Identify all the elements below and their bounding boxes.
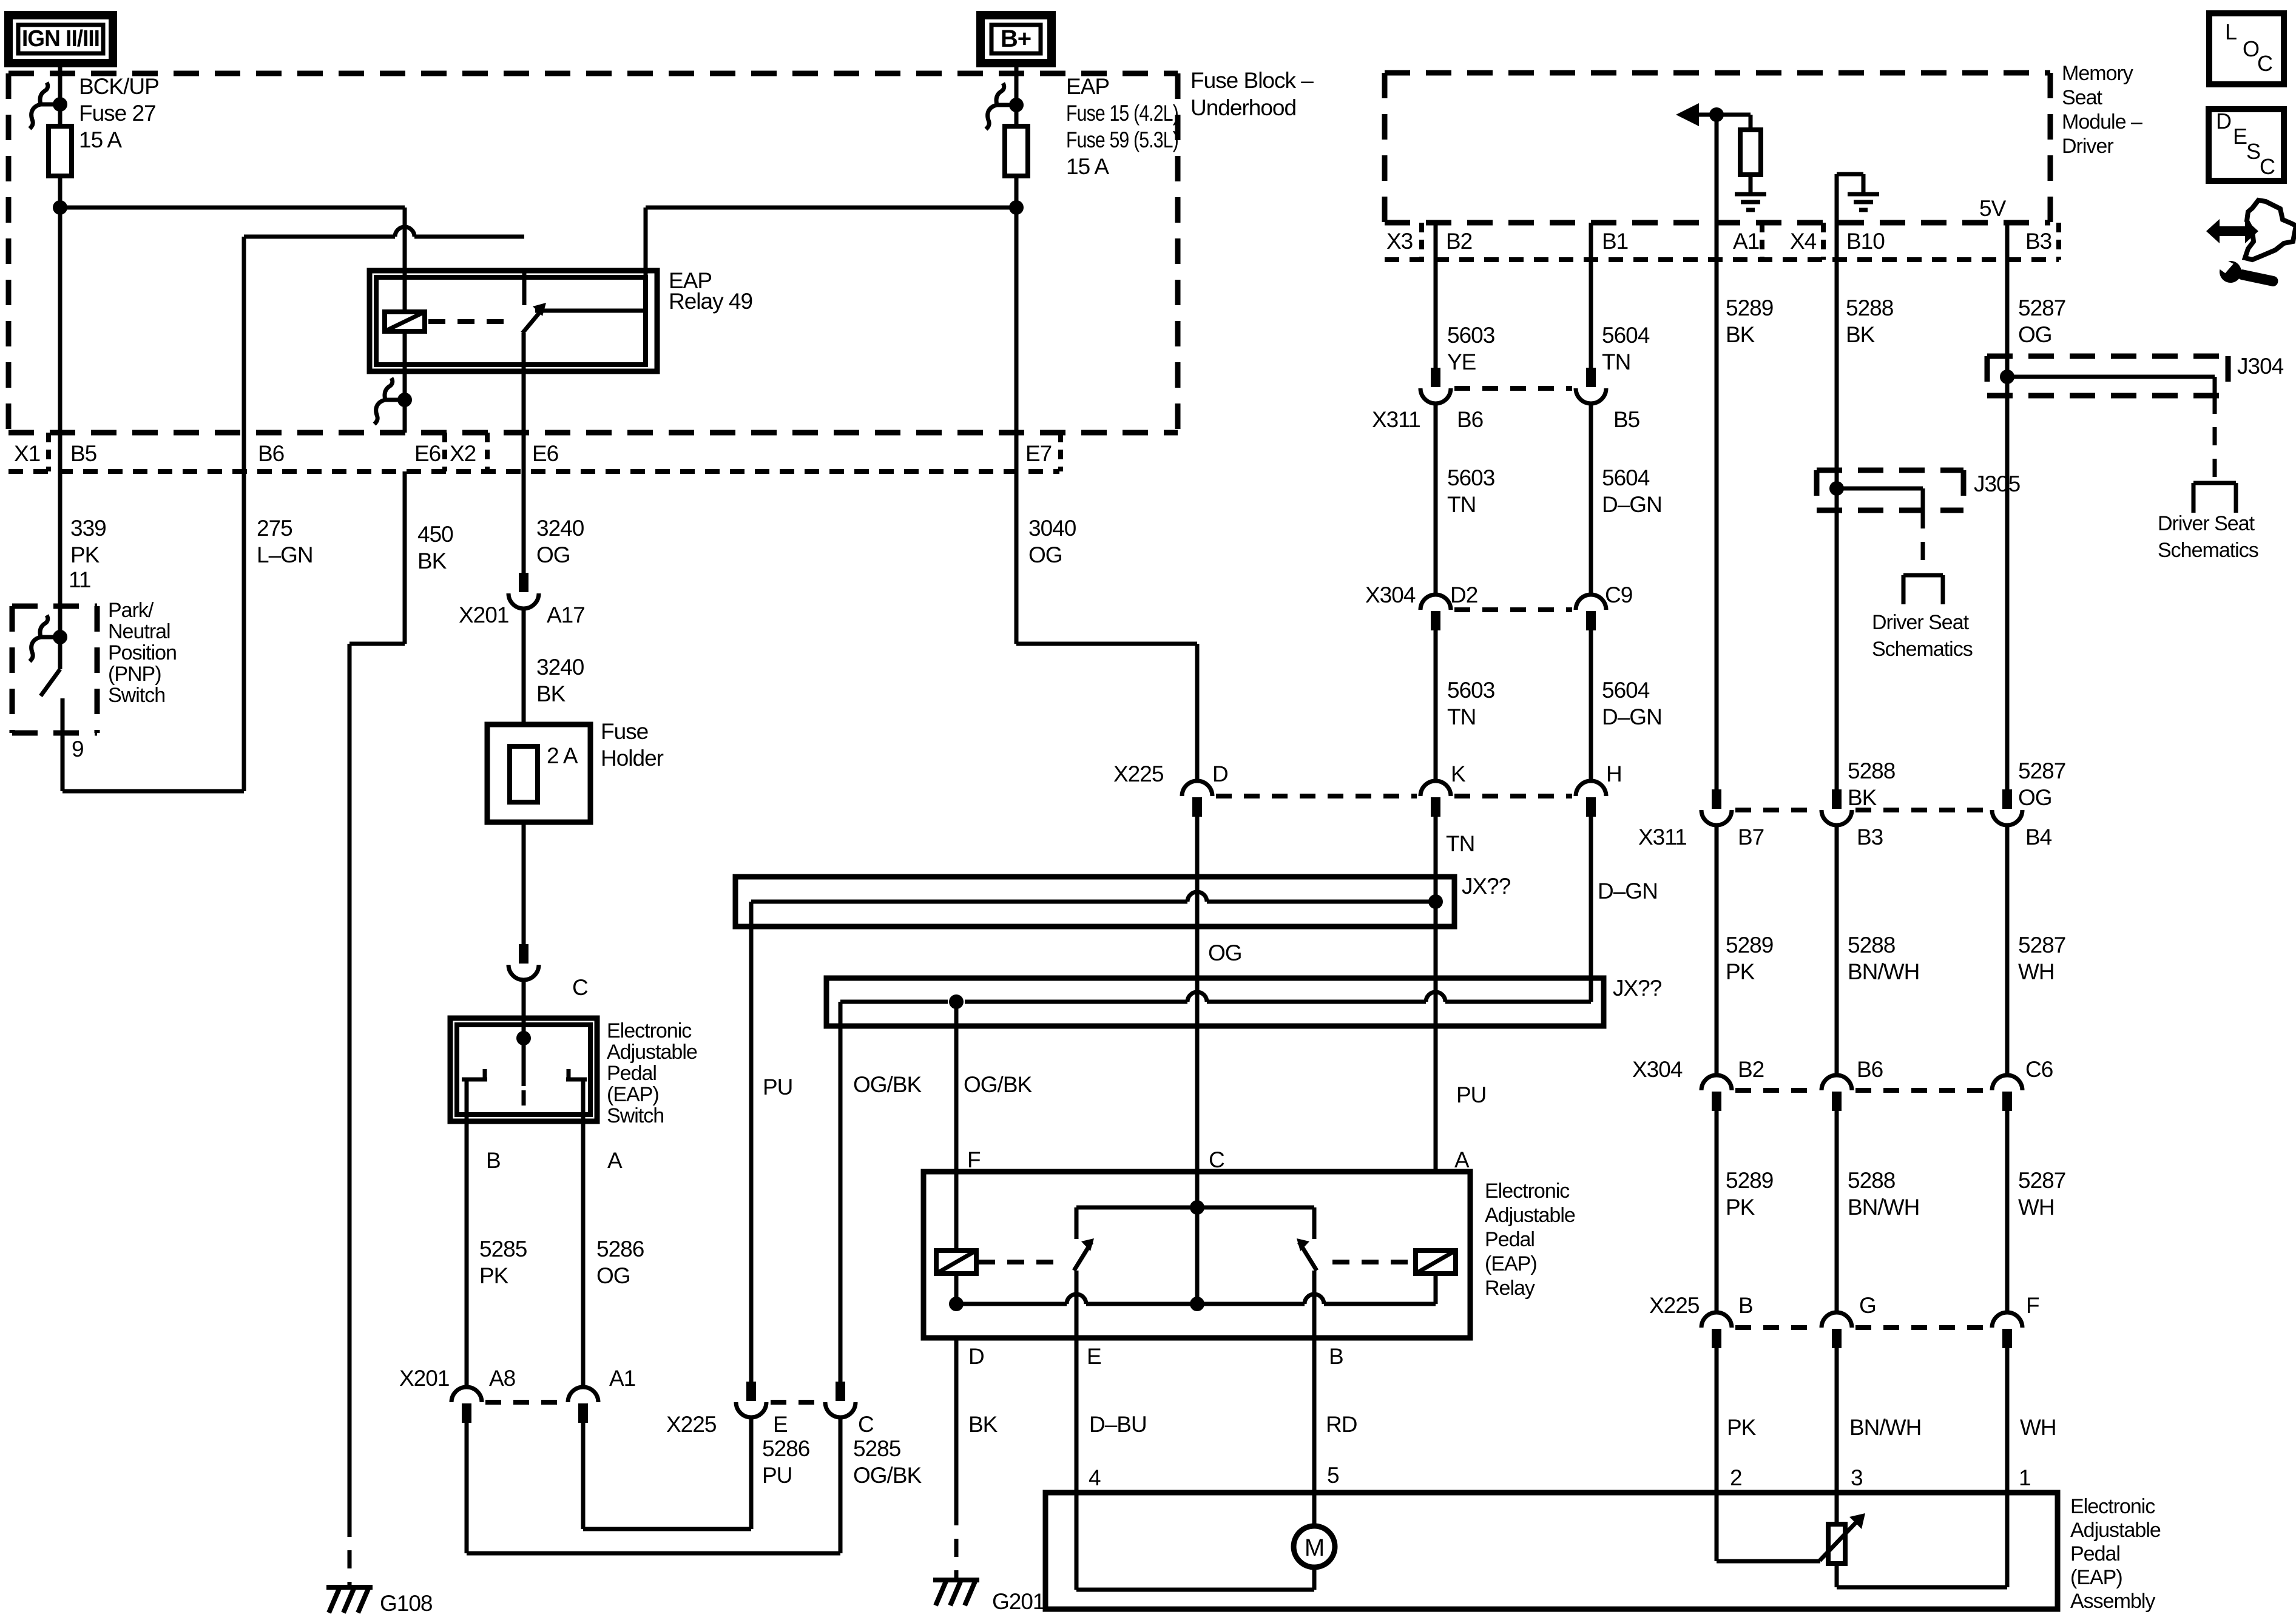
svg-text:D–GN: D–GN bbox=[1602, 704, 1662, 729]
svg-text:X311: X311 bbox=[1638, 825, 1687, 849]
svg-text:9: 9 bbox=[72, 737, 84, 761]
svg-text:B10: B10 bbox=[1846, 229, 1885, 254]
svg-text:OG: OG bbox=[2018, 322, 2052, 347]
svg-text:Switch: Switch bbox=[108, 684, 165, 707]
svg-text:B6: B6 bbox=[258, 441, 284, 466]
svg-text:Switch: Switch bbox=[607, 1104, 664, 1127]
svg-text:C: C bbox=[2257, 51, 2272, 76]
svg-text:D–GN: D–GN bbox=[1598, 879, 1658, 903]
svg-text:5604: 5604 bbox=[1602, 323, 1650, 348]
svg-text:Electronic: Electronic bbox=[2070, 1495, 2155, 1518]
svg-text:OG: OG bbox=[536, 542, 570, 567]
svg-text:Memory: Memory bbox=[2062, 62, 2133, 85]
svg-text:BCK/UP: BCK/UP bbox=[79, 74, 159, 99]
svg-text:5: 5 bbox=[1327, 1463, 1339, 1488]
svg-text:EAP: EAP bbox=[1066, 74, 1109, 99]
svg-text:5289: 5289 bbox=[1726, 933, 1773, 957]
svg-text:WH: WH bbox=[2018, 959, 2055, 984]
svg-text:Electronic: Electronic bbox=[607, 1019, 692, 1042]
svg-text:5287: 5287 bbox=[2018, 295, 2065, 320]
svg-text:3240: 3240 bbox=[536, 655, 584, 680]
svg-text:Fuse Block –: Fuse Block – bbox=[1190, 68, 1314, 93]
svg-text:B+: B+ bbox=[1001, 25, 1031, 52]
svg-text:Schematics: Schematics bbox=[1872, 638, 1973, 661]
svg-text:G: G bbox=[1859, 1293, 1876, 1318]
svg-text:OG/BK: OG/BK bbox=[853, 1463, 922, 1488]
svg-text:PK: PK bbox=[1726, 959, 1755, 984]
svg-text:C6: C6 bbox=[2025, 1057, 2053, 1082]
svg-text:C: C bbox=[1209, 1147, 1224, 1172]
svg-text:X304: X304 bbox=[1365, 582, 1416, 607]
svg-text:1: 1 bbox=[2019, 1465, 2031, 1490]
svg-text:D2: D2 bbox=[1450, 582, 1477, 607]
svg-text:E: E bbox=[1087, 1344, 1101, 1369]
svg-text:J304: J304 bbox=[2237, 354, 2284, 379]
svg-text:Neutral: Neutral bbox=[108, 620, 171, 643]
svg-text:B: B bbox=[1738, 1293, 1753, 1318]
svg-text:2: 2 bbox=[1730, 1465, 1742, 1490]
svg-text:Module –: Module – bbox=[2062, 110, 2142, 133]
svg-text:B: B bbox=[486, 1148, 501, 1173]
svg-text:A1: A1 bbox=[609, 1366, 635, 1391]
svg-text:X225: X225 bbox=[1113, 761, 1164, 786]
svg-text:B2: B2 bbox=[1738, 1057, 1764, 1082]
svg-text:5604: 5604 bbox=[1602, 465, 1650, 490]
svg-text:15 A: 15 A bbox=[1066, 154, 1109, 179]
svg-text:M: M bbox=[1305, 1534, 1324, 1561]
svg-text:5288: 5288 bbox=[1848, 758, 1895, 783]
svg-text:B7: B7 bbox=[1738, 825, 1764, 849]
svg-text:5604: 5604 bbox=[1602, 678, 1650, 703]
svg-text:B2: B2 bbox=[1446, 229, 1472, 254]
svg-text:5287: 5287 bbox=[2018, 1168, 2065, 1193]
svg-text:B3: B3 bbox=[1857, 825, 1883, 849]
svg-text:TN: TN bbox=[1602, 349, 1630, 374]
svg-text:(PNP): (PNP) bbox=[108, 663, 161, 686]
svg-text:RD: RD bbox=[1326, 1412, 1357, 1437]
svg-text:5286: 5286 bbox=[762, 1436, 809, 1461]
svg-text:5603: 5603 bbox=[1447, 323, 1494, 348]
svg-text:A1: A1 bbox=[1733, 229, 1759, 254]
svg-text:3040: 3040 bbox=[1028, 516, 1076, 541]
svg-text:5V: 5V bbox=[1979, 196, 2007, 221]
svg-text:WH: WH bbox=[2020, 1415, 2056, 1440]
svg-text:3: 3 bbox=[1851, 1465, 1863, 1490]
svg-text:Fuse 15 (4.2L): Fuse 15 (4.2L) bbox=[1066, 101, 1178, 126]
svg-text:X2: X2 bbox=[450, 441, 476, 466]
svg-text:275: 275 bbox=[257, 516, 292, 541]
svg-text:BK: BK bbox=[417, 549, 447, 573]
svg-text:YE: YE bbox=[1447, 349, 1476, 374]
svg-text:339: 339 bbox=[70, 516, 106, 541]
svg-text:5603: 5603 bbox=[1447, 465, 1494, 490]
svg-text:X201: X201 bbox=[459, 603, 508, 627]
svg-text:J305: J305 bbox=[1974, 471, 2021, 496]
svg-text:PK: PK bbox=[479, 1263, 509, 1288]
svg-text:BK: BK bbox=[968, 1412, 998, 1437]
svg-text:E: E bbox=[2233, 124, 2247, 149]
svg-text:D–GN: D–GN bbox=[1602, 492, 1662, 517]
svg-text:PU: PU bbox=[762, 1463, 792, 1488]
svg-text:H: H bbox=[1606, 761, 1622, 786]
svg-text:3240: 3240 bbox=[536, 516, 584, 541]
svg-text:X4: X4 bbox=[1790, 229, 1817, 254]
svg-text:B1: B1 bbox=[1602, 229, 1628, 254]
svg-text:JX??: JX?? bbox=[1613, 976, 1662, 1001]
svg-text:D: D bbox=[2216, 109, 2231, 133]
svg-text:5287: 5287 bbox=[2018, 758, 2065, 783]
svg-text:5286: 5286 bbox=[596, 1237, 644, 1261]
svg-text:TN: TN bbox=[1446, 831, 1474, 856]
svg-text:A: A bbox=[1454, 1147, 1470, 1172]
svg-text:5288: 5288 bbox=[1848, 933, 1895, 957]
svg-text:BN/WH: BN/WH bbox=[1848, 1195, 1919, 1220]
svg-text:G108: G108 bbox=[380, 1591, 433, 1616]
svg-text:X225: X225 bbox=[666, 1412, 717, 1437]
svg-text:S: S bbox=[2246, 139, 2260, 164]
svg-text:OG: OG bbox=[1208, 940, 1242, 965]
svg-text:G201: G201 bbox=[992, 1589, 1045, 1614]
svg-text:PU: PU bbox=[763, 1075, 792, 1099]
svg-text:15 A: 15 A bbox=[79, 127, 122, 152]
svg-text:B5: B5 bbox=[70, 441, 97, 466]
svg-text:Position: Position bbox=[108, 641, 177, 664]
svg-text:5603: 5603 bbox=[1447, 678, 1494, 703]
svg-text:L–GN: L–GN bbox=[257, 542, 313, 567]
svg-text:A: A bbox=[607, 1148, 623, 1173]
svg-text:OG: OG bbox=[1028, 542, 1062, 567]
svg-text:OG/BK: OG/BK bbox=[853, 1072, 922, 1097]
svg-text:Electronic: Electronic bbox=[1485, 1180, 1570, 1203]
svg-text:Holder: Holder bbox=[601, 746, 664, 771]
svg-text:E7: E7 bbox=[1025, 441, 1052, 466]
svg-text:5288: 5288 bbox=[1848, 1168, 1895, 1193]
svg-text:C: C bbox=[2260, 154, 2275, 179]
svg-text:PK: PK bbox=[1726, 1195, 1755, 1220]
svg-text:E: E bbox=[773, 1412, 788, 1437]
svg-text:X311: X311 bbox=[1372, 407, 1420, 432]
svg-text:OG: OG bbox=[596, 1263, 630, 1288]
svg-text:JX??: JX?? bbox=[1462, 874, 1511, 899]
svg-text:X225: X225 bbox=[1649, 1293, 1700, 1318]
svg-text:BK: BK bbox=[536, 681, 566, 706]
svg-text:BK: BK bbox=[1848, 785, 1877, 810]
svg-text:(EAP): (EAP) bbox=[607, 1083, 659, 1106]
svg-text:Park/: Park/ bbox=[108, 599, 154, 622]
svg-text:O: O bbox=[2243, 36, 2259, 61]
svg-text:A17: A17 bbox=[547, 603, 585, 627]
svg-text:WH: WH bbox=[2018, 1195, 2055, 1220]
svg-text:Relay: Relay bbox=[1485, 1277, 1535, 1300]
svg-text:Adjustable: Adjustable bbox=[1485, 1204, 1575, 1227]
svg-text:TN: TN bbox=[1447, 492, 1476, 517]
svg-text:450: 450 bbox=[417, 522, 453, 547]
svg-text:5285: 5285 bbox=[853, 1436, 901, 1461]
svg-text:BK: BK bbox=[1726, 322, 1755, 347]
svg-text:Pedal: Pedal bbox=[2070, 1542, 2120, 1565]
svg-text:E6: E6 bbox=[532, 441, 558, 466]
svg-text:B6: B6 bbox=[1857, 1057, 1883, 1082]
svg-text:PK: PK bbox=[1727, 1415, 1757, 1440]
svg-text:X201: X201 bbox=[399, 1366, 449, 1391]
svg-text:Driver Seat: Driver Seat bbox=[1872, 611, 1970, 634]
svg-text:B: B bbox=[1329, 1344, 1343, 1369]
svg-text:(EAP): (EAP) bbox=[2070, 1566, 2122, 1589]
svg-text:B4: B4 bbox=[2025, 825, 2052, 849]
svg-text:Driver: Driver bbox=[2062, 135, 2113, 158]
svg-text:2 A: 2 A bbox=[547, 743, 578, 768]
svg-text:Assembly: Assembly bbox=[2070, 1590, 2155, 1613]
svg-text:BK: BK bbox=[1846, 322, 1876, 347]
svg-text:Schematics: Schematics bbox=[2158, 539, 2258, 562]
svg-text:5289: 5289 bbox=[1726, 295, 1773, 320]
svg-text:Driver Seat: Driver Seat bbox=[2158, 512, 2255, 535]
svg-text:X3: X3 bbox=[1386, 229, 1413, 254]
svg-text:B6: B6 bbox=[1457, 407, 1483, 432]
svg-text:C: C bbox=[858, 1412, 874, 1437]
svg-text:Fuse 59 (5.3L): Fuse 59 (5.3L) bbox=[1066, 127, 1178, 152]
svg-text:5287: 5287 bbox=[2018, 933, 2065, 957]
svg-text:F: F bbox=[2026, 1293, 2039, 1318]
svg-text:OG/BK: OG/BK bbox=[964, 1072, 1033, 1097]
svg-text:K: K bbox=[1451, 761, 1466, 786]
svg-text:B3: B3 bbox=[2025, 229, 2051, 254]
svg-text:OG: OG bbox=[2018, 785, 2052, 810]
svg-text:Seat: Seat bbox=[2062, 86, 2102, 109]
svg-text:Fuse: Fuse bbox=[601, 719, 648, 744]
svg-text:D: D bbox=[1212, 761, 1228, 786]
svg-text:Pedal: Pedal bbox=[607, 1062, 657, 1085]
svg-text:D: D bbox=[968, 1344, 984, 1369]
svg-text:5285: 5285 bbox=[479, 1237, 527, 1261]
svg-text:PK: PK bbox=[70, 542, 100, 567]
svg-text:Adjustable: Adjustable bbox=[607, 1041, 697, 1064]
svg-text:PU: PU bbox=[1456, 1082, 1486, 1107]
svg-text:BN/WH: BN/WH bbox=[1848, 959, 1919, 984]
svg-text:TN: TN bbox=[1447, 704, 1476, 729]
svg-text:Relay 49: Relay 49 bbox=[669, 289, 752, 314]
svg-text:A8: A8 bbox=[489, 1366, 515, 1391]
svg-text:4: 4 bbox=[1089, 1465, 1101, 1490]
svg-text:Underhood: Underhood bbox=[1190, 95, 1296, 120]
svg-text:C: C bbox=[572, 975, 588, 1000]
svg-text:5289: 5289 bbox=[1726, 1168, 1773, 1193]
svg-text:D–BU: D–BU bbox=[1089, 1412, 1147, 1437]
svg-text:Adjustable: Adjustable bbox=[2070, 1519, 2161, 1542]
svg-text:X304: X304 bbox=[1632, 1057, 1683, 1082]
svg-text:IGN II/III: IGN II/III bbox=[22, 26, 100, 52]
svg-text:F: F bbox=[967, 1147, 981, 1172]
svg-text:B5: B5 bbox=[1613, 407, 1640, 432]
svg-text:E6: E6 bbox=[414, 441, 441, 466]
svg-text:X1: X1 bbox=[14, 441, 40, 466]
svg-text:C9: C9 bbox=[1605, 582, 1632, 607]
svg-text:Pedal: Pedal bbox=[1485, 1228, 1535, 1251]
svg-text:L: L bbox=[2225, 19, 2237, 44]
svg-text:(EAP): (EAP) bbox=[1485, 1252, 1537, 1275]
svg-text:5288: 5288 bbox=[1846, 295, 1893, 320]
svg-text:11: 11 bbox=[69, 567, 90, 592]
svg-text:BN/WH: BN/WH bbox=[1849, 1415, 1921, 1440]
svg-text:Fuse 27: Fuse 27 bbox=[79, 101, 156, 126]
